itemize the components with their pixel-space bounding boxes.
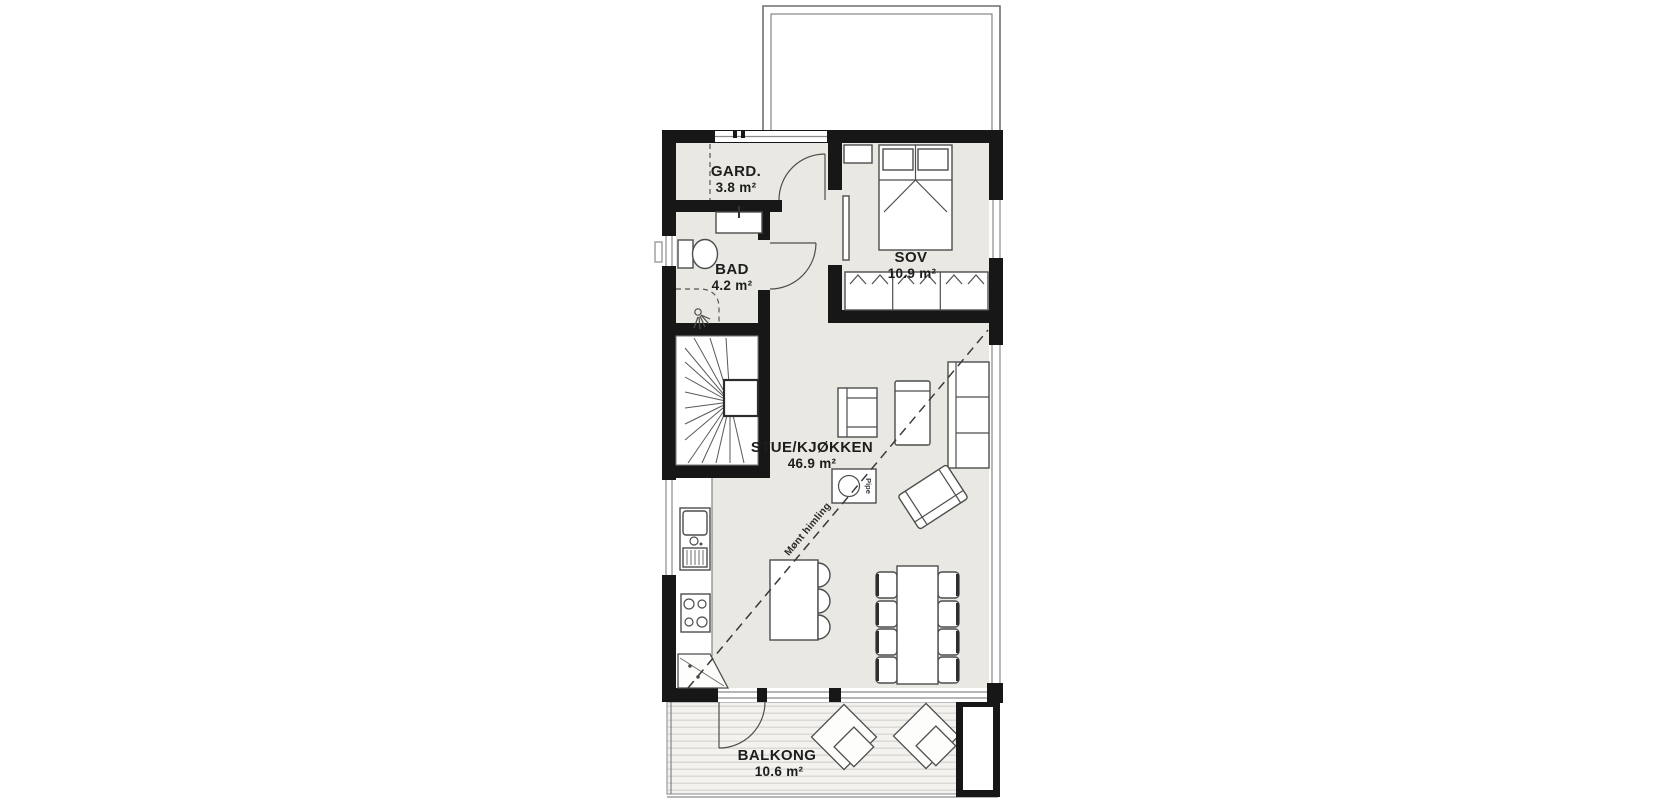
kitchen-island xyxy=(770,560,830,640)
window-right-bedroom xyxy=(989,200,1003,258)
floor-plan-drawing: BALKONG 10.6 m² xyxy=(0,0,1670,800)
room-area-stue: 46.9 m² xyxy=(788,456,837,471)
nightstand xyxy=(844,145,872,163)
wall-gard-bottom xyxy=(676,200,782,212)
stair-landing xyxy=(724,380,758,416)
staircase xyxy=(676,336,758,465)
window-left-bath xyxy=(655,236,676,266)
room-label-sov: SOV xyxy=(895,249,928,266)
wall-stairs-top xyxy=(662,323,770,336)
room-area-balkong: 10.6 m² xyxy=(755,764,804,779)
balcony-storage-box xyxy=(956,700,1000,797)
wall-bedroom-bottom xyxy=(828,310,1003,323)
double-bed xyxy=(879,145,952,250)
glass-wall-bottom xyxy=(718,688,987,702)
window-left-kitchen xyxy=(662,480,676,575)
room-area-gard: 3.8 m² xyxy=(716,180,757,195)
armchair xyxy=(838,388,877,437)
wall-bedroom-left-upper xyxy=(828,136,842,190)
balcony: BALKONG 10.6 m² xyxy=(667,700,1000,797)
mullion-post xyxy=(757,688,767,702)
cooktop xyxy=(681,594,710,632)
toilet xyxy=(678,240,718,269)
dining-table xyxy=(897,566,938,684)
room-label-balkong: BALKONG xyxy=(738,747,817,764)
chaise xyxy=(895,381,930,445)
room-label-stue: STUE/KJØKKEN xyxy=(751,439,873,456)
mullion-post xyxy=(829,688,841,702)
sofa xyxy=(948,362,989,468)
room-label-bad: BAD xyxy=(715,261,749,278)
chimney-label: Pipe xyxy=(864,478,873,494)
bedroom-door-leaf xyxy=(843,196,849,260)
upper-floor-outline xyxy=(763,6,1000,130)
wall-stairs-right xyxy=(758,336,770,478)
room-area-bad: 4.2 m² xyxy=(712,278,753,293)
floor-plan-canvas: BALKONG 10.6 m² xyxy=(0,0,1670,800)
room-area-sov: 10.9 m² xyxy=(888,266,937,281)
chimney-stove: Pipe xyxy=(832,469,876,503)
dining-set xyxy=(876,566,959,684)
kitchen-sink-unit xyxy=(680,508,710,570)
wall-stairs-bottom xyxy=(662,465,770,478)
glass-wall-right xyxy=(989,345,1003,683)
window-top xyxy=(715,131,827,142)
room-label-gard: GARD. xyxy=(711,163,761,180)
